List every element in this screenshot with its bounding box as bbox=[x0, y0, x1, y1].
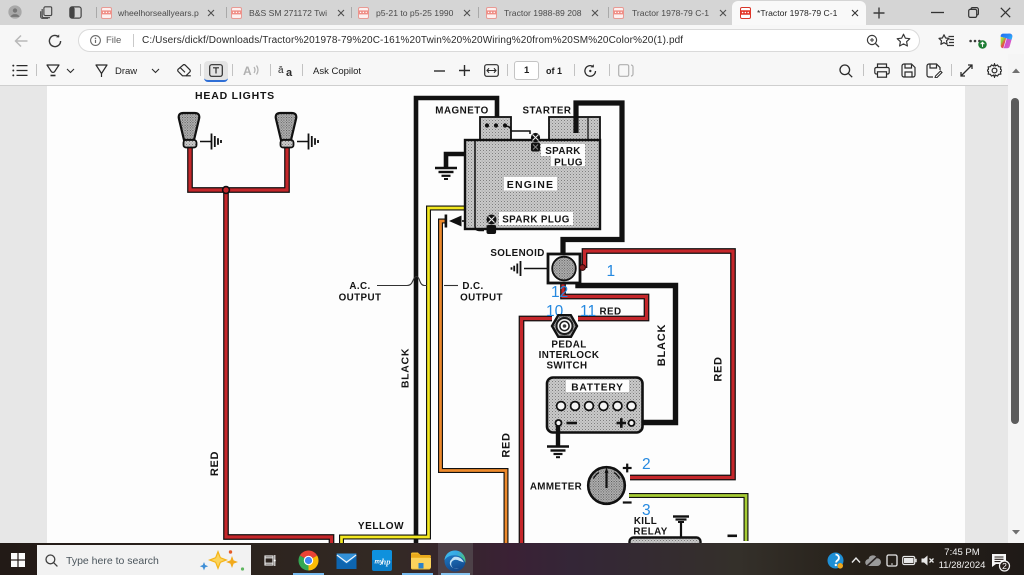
svg-text:12: 12 bbox=[551, 284, 568, 301]
svg-text:D.C.: D.C. bbox=[462, 281, 483, 292]
svg-text:1: 1 bbox=[607, 263, 616, 280]
svg-text:PLUG: PLUG bbox=[554, 158, 583, 169]
svg-text:RELAY: RELAY bbox=[633, 527, 667, 538]
svg-text:PEDAL: PEDAL bbox=[551, 340, 586, 351]
svg-text:RED: RED bbox=[209, 451, 221, 476]
svg-text:STARTER: STARTER bbox=[522, 106, 571, 117]
svg-text:2: 2 bbox=[1002, 561, 1007, 571]
svg-text:SWITCH: SWITCH bbox=[546, 361, 587, 372]
svg-text:BATTERY: BATTERY bbox=[571, 383, 624, 394]
svg-text:RED: RED bbox=[501, 432, 513, 457]
svg-text:SPARK: SPARK bbox=[545, 146, 581, 157]
svg-text:MAGNETO: MAGNETO bbox=[435, 106, 488, 117]
svg-text:HEAD LIGHTS: HEAD LIGHTS bbox=[195, 90, 275, 102]
svg-text:A.C.: A.C. bbox=[349, 281, 370, 292]
svg-text:KILL: KILL bbox=[634, 516, 657, 527]
svg-text:11: 11 bbox=[580, 303, 596, 320]
svg-text:RED: RED bbox=[713, 356, 725, 381]
svg-text:YELLOW: YELLOW bbox=[358, 521, 404, 532]
svg-text:BLACK: BLACK bbox=[656, 324, 668, 367]
svg-text:2: 2 bbox=[642, 456, 651, 473]
svg-text:OUTPUT: OUTPUT bbox=[339, 293, 382, 304]
svg-text:OUTPUT: OUTPUT bbox=[460, 293, 503, 304]
svg-text:SPARK PLUG: SPARK PLUG bbox=[502, 215, 570, 226]
svg-text:AMMETER: AMMETER bbox=[530, 482, 582, 493]
svg-text:RED: RED bbox=[600, 307, 622, 318]
svg-text:hp: hp bbox=[382, 557, 391, 567]
svg-text:BLACK: BLACK bbox=[400, 348, 412, 388]
svg-text:ENGINE: ENGINE bbox=[507, 179, 554, 191]
svg-text:SOLENOID: SOLENOID bbox=[490, 248, 544, 259]
svg-text:INTERLOCK: INTERLOCK bbox=[539, 350, 600, 361]
svg-text:ā: ā bbox=[278, 65, 284, 76]
svg-text:A: A bbox=[243, 64, 252, 77]
svg-text:a: a bbox=[286, 67, 293, 78]
